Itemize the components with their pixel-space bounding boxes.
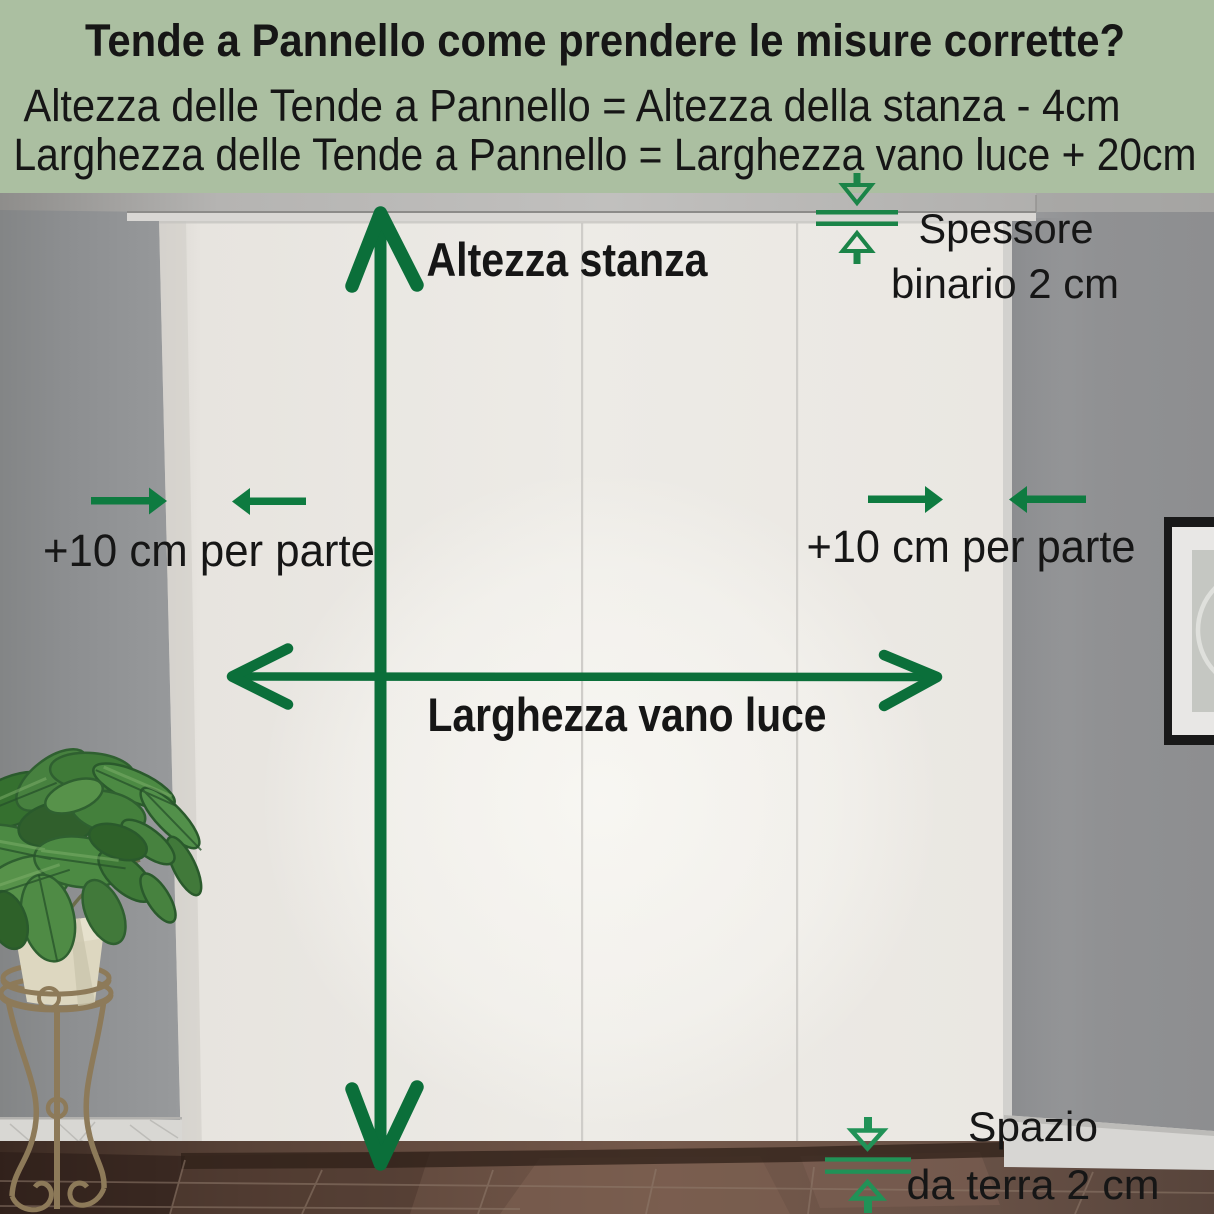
svg-text:Larghezza vano luce: Larghezza vano luce bbox=[428, 688, 827, 741]
svg-text:Tende a Pannello come prendere: Tende a Pannello come prendere le misure… bbox=[85, 15, 1125, 66]
svg-text:da terra 2 cm: da terra 2 cm bbox=[907, 1161, 1160, 1208]
svg-text:Spessore: Spessore bbox=[919, 205, 1094, 252]
svg-text:+10 cm per parte: +10 cm per parte bbox=[807, 521, 1136, 572]
svg-text:Spazio: Spazio bbox=[968, 1103, 1098, 1150]
svg-text:+10 cm per parte: +10 cm per parte bbox=[43, 525, 375, 576]
svg-text:Altezza delle Tende a Pannello: Altezza delle Tende a Pannello = Altezza… bbox=[24, 80, 1121, 131]
svg-text:Larghezza delle Tende a Pannel: Larghezza delle Tende a Pannello = Largh… bbox=[14, 129, 1197, 180]
svg-text:binario 2 cm: binario 2 cm bbox=[891, 260, 1119, 307]
svg-text:Altezza stanza: Altezza stanza bbox=[427, 233, 709, 286]
